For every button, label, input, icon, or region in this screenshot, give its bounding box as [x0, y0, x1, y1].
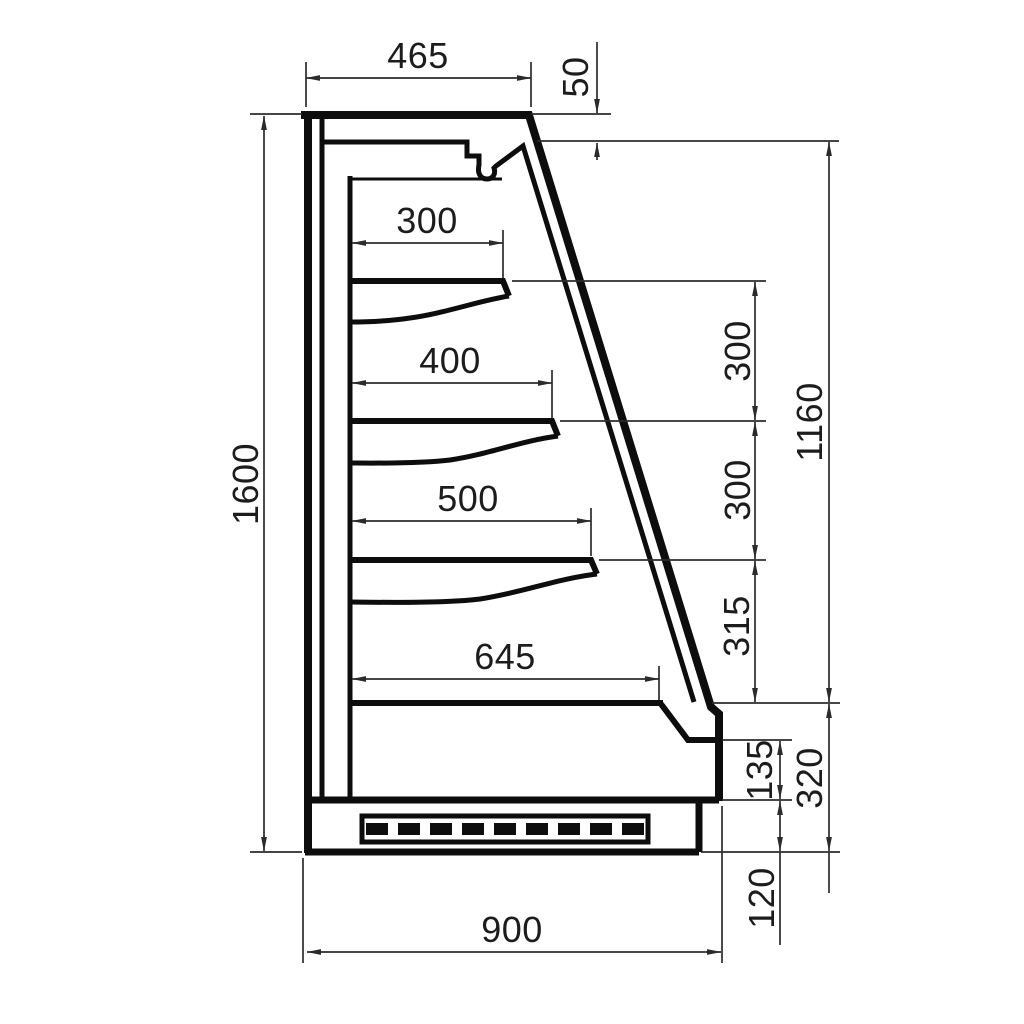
shelf-middle-underside-wave: [350, 436, 558, 463]
shelves: [350, 281, 597, 602]
shelf-top-underside-wave: [350, 296, 509, 322]
dim-shelf-middle-depth-label: 400: [419, 340, 481, 381]
dim-top-depth-label: 465: [387, 35, 449, 76]
dim-shelf-spacing-top: 300: [717, 282, 758, 420]
shelf-top-surface-line: [350, 281, 509, 296]
dim-opening-height-label: 1160: [789, 382, 830, 461]
dim-shelf-spacing-top-label: 300: [717, 320, 758, 382]
dim-overall-height-label: 1600: [225, 443, 266, 525]
dim-base-section-height: 320: [789, 704, 830, 893]
dim-shelf-top-depth: 300: [352, 200, 503, 278]
dim-shelf-spacing-middle: 300: [717, 422, 758, 559]
dim-well-depth: 645: [352, 636, 659, 700]
dim-shelf-bottom-depth: 500: [352, 478, 591, 556]
dim-bumper-height-label: 135: [739, 739, 780, 801]
dim-base-section-height-label: 320: [789, 747, 830, 809]
dim-canopy-drop-label: 50: [555, 56, 596, 97]
dim-shelf-bottom-depth-label: 500: [437, 478, 499, 519]
dim-overall-depth-label: 900: [481, 909, 543, 950]
dim-shelf-top-depth-label: 300: [396, 200, 458, 241]
dim-plinth-height: 120: [741, 801, 782, 945]
shelf-top: [350, 281, 509, 322]
dim-well-depth-label: 645: [474, 636, 536, 677]
dim-plinth-height-label: 120: [741, 867, 782, 929]
shelf-bottom-surface-line: [350, 560, 597, 574]
dim-shelf-middle-depth: 400: [352, 340, 552, 418]
dim-shelf-spacing-bottom: 315: [716, 561, 757, 702]
dim-shelf-spacing-bottom-label: 315: [716, 595, 757, 657]
shelf-middle: [350, 421, 558, 463]
vent-grille-slats: [366, 823, 644, 835]
dim-overall-height: 1600: [225, 114, 302, 852]
technical-drawing-canvas: 465 50 1600 300 400: [0, 0, 1024, 1024]
cabinet-outline: [301, 111, 719, 853]
dim-canopy-drop: 50: [531, 42, 839, 160]
drawing-svg: 465 50 1600 300 400: [0, 0, 1024, 1024]
dim-opening-height: 1160: [789, 142, 830, 702]
dim-shelf-spacing-middle-label: 300: [717, 459, 758, 521]
shelf-bottom: [350, 560, 597, 602]
vent-grille: [362, 816, 648, 842]
dim-top-depth: 465: [306, 35, 531, 107]
dim-bumper-height: 135: [739, 739, 780, 801]
shelf-bottom-underside-wave: [350, 574, 597, 602]
shelf-middle-surface-line: [350, 421, 558, 436]
